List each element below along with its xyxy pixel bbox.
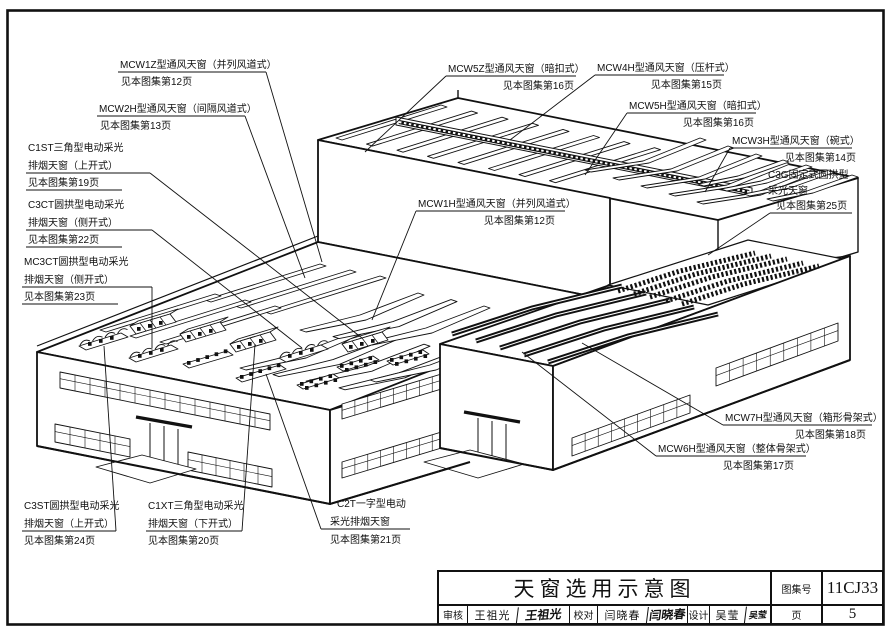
skylight-pane — [395, 362, 399, 366]
skylight-pane — [240, 375, 244, 379]
skylight-pane — [196, 358, 200, 362]
reviewer-label: 审核 — [439, 606, 467, 623]
skylight-pane — [329, 374, 333, 378]
callout-mcw4h-page-ref: 见本图集第15页 — [651, 78, 722, 91]
skylight-pane — [345, 368, 349, 372]
callout-mcw5z-page-ref: 见本图集第16页 — [503, 79, 574, 92]
drawing-sheet: MCW1Z型通风天窗（并列风道式）见本图集第12页MCW2H型通风天窗（间隔风道… — [0, 0, 892, 632]
skylight-pane — [215, 352, 219, 356]
skylight-pane — [99, 339, 103, 343]
skylight-pane — [371, 339, 375, 343]
skylight-pane — [149, 351, 153, 355]
callout-c3g-page-ref: 见本图集第25页 — [776, 199, 847, 212]
skylight-pane — [268, 366, 272, 370]
skylight-pane — [198, 332, 202, 336]
skylight-pane — [159, 321, 163, 325]
callout-c2t-page-ref: 见本图集第21页 — [330, 533, 401, 546]
skylight-pane — [249, 372, 253, 376]
skylight-pane — [148, 324, 152, 328]
callout-c1st-page-ref: 见本图集第19页 — [28, 176, 99, 189]
callout-c3st-name: C3ST圆拱型电动采光 — [24, 499, 120, 512]
skylight-pane — [205, 355, 209, 359]
callout-mc3ct-page-ref: 见本图集第23页 — [24, 290, 95, 303]
callout-c3ct-name: 排烟天窗（侧开式） — [28, 216, 118, 229]
callout-c2t-name: C2T一字型电动 — [337, 497, 406, 510]
skylight-pane — [334, 378, 338, 382]
skylight-pane — [209, 329, 213, 333]
title-block-row-2: 审核 王祖光 王祖光 校对 闫晓春 闫晓春 设计 吴莹 吴莹 页 5 — [439, 604, 882, 623]
skylight-pane — [305, 386, 309, 390]
skylight-pane — [409, 353, 413, 357]
callout-c1st-name: 排烟天窗（上开式） — [28, 159, 118, 172]
checker-signature: 闫晓春 — [646, 605, 688, 624]
skylight-pane — [187, 361, 191, 365]
sheet-title: 天窗选用示意图 — [439, 572, 770, 604]
callout-mcw1h-page-ref: 见本图集第12页 — [484, 214, 555, 227]
title-block-row-1: 天窗选用示意图 图集号 11CJ33 — [439, 572, 882, 604]
callout-c1xt-page-ref: 见本图集第20页 — [148, 534, 219, 547]
skylight-pane — [224, 349, 228, 353]
reviewer-name: 王祖光 — [467, 606, 517, 623]
skylight-pane — [258, 369, 262, 373]
callout-mc3ct-name: 排烟天窗（侧开式） — [24, 273, 114, 286]
skylight-pane — [277, 363, 281, 367]
skylight-pane — [414, 357, 418, 361]
callout-mcw1h-name: MCW1H型通风天窗（并列风道式） — [418, 197, 576, 210]
skylight-pane — [310, 379, 314, 383]
designer-signature: 吴莹 — [744, 605, 771, 623]
callout-mcw6h-page-ref: 见本图集第17页 — [723, 459, 794, 472]
reviewer-signature: 王祖光 — [516, 605, 571, 625]
skylight-pane — [160, 348, 164, 352]
callout-c2t-name: 采光排烟天窗 — [330, 515, 390, 528]
skylight-pane — [350, 361, 354, 365]
skylight-pane — [424, 354, 428, 358]
skylight-isometric-drawing: MCW1Z型通风天窗（并列风道式）见本图集第12页MCW2H型通风天窗（间隔风道… — [0, 0, 892, 632]
skylight-pane — [359, 359, 363, 363]
callout-c3st-name: 排烟天窗（上开式） — [24, 517, 114, 530]
atlas-number-value: 11CJ33 — [821, 572, 882, 604]
callout-mc3ct-name: MC3CT圆拱型电动采光 — [24, 255, 128, 268]
skylight-pane — [300, 382, 304, 386]
designer-label: 设计 — [687, 606, 709, 623]
checker-label: 校对 — [569, 606, 597, 623]
callout-c3ct-page-ref: 见本图集第22页 — [28, 233, 99, 246]
callout-mcw5z-name: MCW5Z型通风天窗（暗扣式） — [448, 62, 585, 75]
callout-c3ct-name: C3CT圆拱型电动采光 — [28, 198, 124, 211]
callout-c1st-name: C1ST三角型电动采光 — [28, 141, 124, 154]
skylight-pane — [288, 354, 292, 358]
callout-mcw7h-name: MCW7H型通风天窗（箱形骨架式） — [725, 411, 883, 424]
skylight-pane — [349, 345, 353, 349]
skylight-pane — [237, 345, 241, 349]
callout-c3st-page-ref: 见本图集第24页 — [24, 534, 95, 547]
skylight-pane — [110, 336, 114, 340]
skylight-pane — [299, 351, 303, 355]
callout-c1xt-name: 排烟天窗（下开式） — [148, 517, 238, 530]
skylight-pane — [419, 350, 423, 354]
page-number: 5 — [821, 606, 882, 623]
callout-c3g-name: 采光天窗 — [768, 184, 808, 197]
callout-mcw1z-name: MCW1Z型通风天窗（并列风道式） — [120, 58, 277, 71]
skylight-pane — [340, 364, 344, 368]
callout-mcw3h-page-ref: 见本图集第14页 — [785, 151, 856, 164]
callout-c3g-name: C3G固定式圆拱型 — [768, 168, 849, 181]
callout-mcw6h-name: MCW6H型通风天窗（整体骨架式） — [658, 442, 816, 455]
callout-mcw7h-page-ref: 见本图集第18页 — [795, 428, 866, 441]
callout-mcw2h-name: MCW2H型通风天窗（间隔风道式） — [99, 102, 257, 115]
skylight-pane — [137, 327, 141, 331]
callout-mcw1z-page-ref: 见本图集第12页 — [121, 75, 192, 88]
callout-c1xt-name: C1XT三角型电动采光 — [148, 499, 244, 512]
skylight-pane — [390, 358, 394, 362]
skylight-pane — [319, 377, 323, 381]
skylight-pane — [259, 339, 263, 343]
skylight-pane — [310, 348, 314, 352]
callout-mcw4h-name: MCW4H型通风天窗（压杆式） — [597, 61, 735, 74]
skylight-pane — [369, 356, 373, 360]
skylight-pane — [315, 383, 319, 387]
skylight-pane — [138, 354, 142, 358]
skylight-pane — [360, 342, 364, 346]
skylight-pane — [248, 342, 252, 346]
skylight-pane — [187, 335, 191, 339]
skylight-pane — [400, 355, 404, 359]
atlas-number-label: 图集号 — [770, 572, 821, 604]
skylight-pane — [88, 342, 92, 346]
designer-name: 吴莹 — [709, 606, 745, 623]
skylight-pane — [324, 381, 328, 385]
callout-mcw2h-page-ref: 见本图集第13页 — [100, 119, 171, 132]
skylight-pane — [405, 359, 409, 363]
leader-line-mcw1z — [266, 72, 322, 262]
callout-mcw5h-page-ref: 见本图集第16页 — [683, 116, 754, 129]
title-block: 天窗选用示意图 图集号 11CJ33 审核 王祖光 王祖光 校对 闫晓春 闫晓春… — [437, 570, 884, 625]
skylight-pane — [374, 360, 378, 364]
page-label: 页 — [770, 606, 821, 623]
skylight-pane — [355, 365, 359, 369]
callout-mcw5h-name: MCW5H型通风天窗（暗扣式） — [629, 99, 767, 112]
skylight-pane — [364, 363, 368, 367]
callout-mcw3h-name: MCW3H型通风天窗（碗式） — [732, 134, 860, 147]
checker-name: 闫晓春 — [597, 606, 647, 623]
